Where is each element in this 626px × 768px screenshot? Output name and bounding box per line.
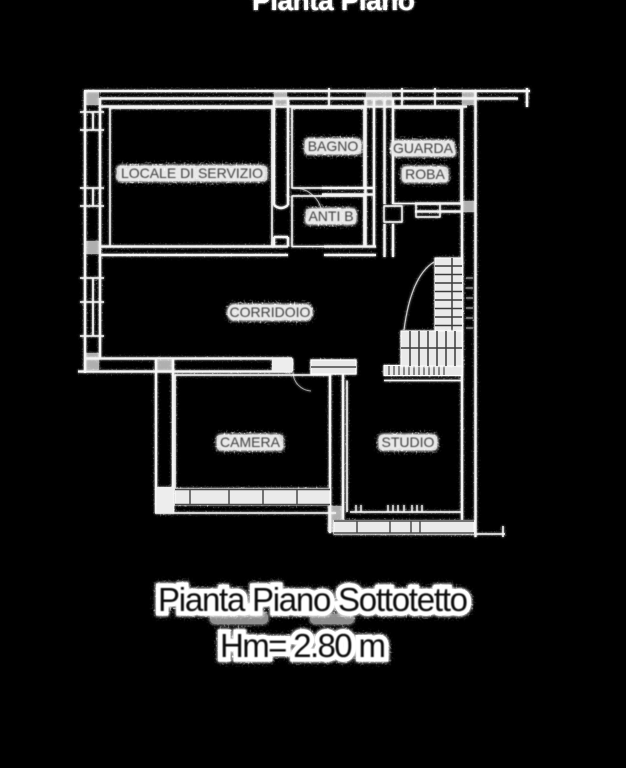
svg-text:GUARDA: GUARDA (393, 140, 454, 156)
svg-text:ANTI B: ANTI B (308, 208, 353, 224)
svg-text:STUDIO: STUDIO (382, 434, 435, 450)
svg-text:ROBA: ROBA (405, 166, 445, 182)
svg-text:Pianta Piano Sottotetto: Pianta Piano Sottotetto (158, 581, 468, 618)
svg-text:Pianta Piano: Pianta Piano (252, 0, 415, 16)
svg-text:BAGNO: BAGNO (308, 138, 359, 154)
svg-text:Hm= 2.80 m: Hm= 2.80 m (220, 627, 386, 664)
svg-text:LOCALE DI SERVIZIO: LOCALE DI SERVIZIO (121, 165, 263, 181)
svg-text:CAMERA: CAMERA (220, 434, 281, 450)
svg-text:CORRIDOIO: CORRIDOIO (230, 304, 311, 320)
